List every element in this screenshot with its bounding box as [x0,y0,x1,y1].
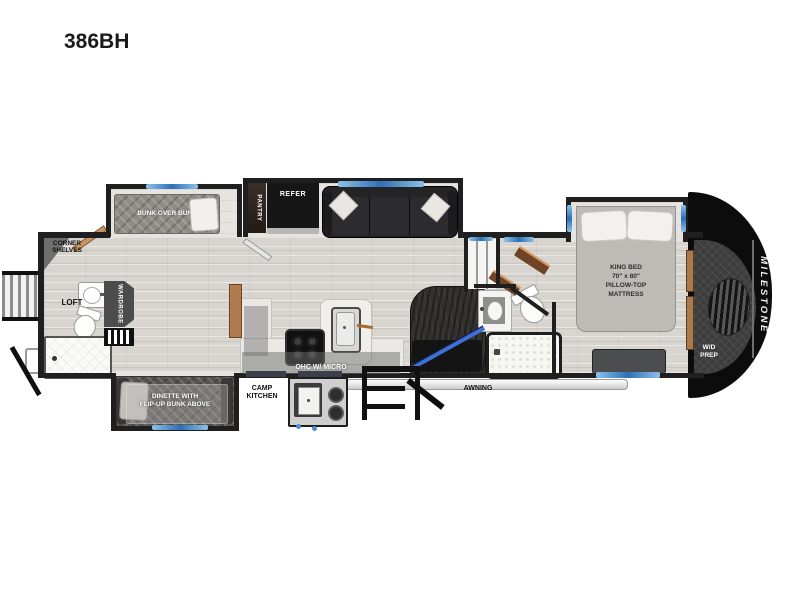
ohc-overlay-left [244,306,268,356]
bunk-slide-wall-right [237,184,242,237]
closet-door-frame-1 [686,250,694,292]
kitchen-wall-pillar [229,284,242,338]
bed-slide-wall-top [566,197,688,202]
bedroom-window [596,372,660,378]
sofa-slide-wall-right [458,178,463,237]
sofa-armrest-right [448,191,457,235]
dresser [592,349,666,374]
dinette-label: DINETTE WITH FLIP-UP BUNK ABOVE [118,393,232,410]
cap-molding-line [752,240,754,358]
dinette-window [152,425,208,430]
stair-wall-right [496,237,500,287]
entry-steps-icon [362,366,420,420]
awning-label: AWNING [448,385,508,393]
bunk-slide-wall-left [106,184,111,237]
island-sink-basin [336,312,355,346]
floorplan-diagram: 386BH CORNER SHELVES LOFT [0,0,800,600]
midbath-tub [486,332,562,379]
bed-pillow-left [580,210,628,242]
rear-ladder-icon [2,271,40,321]
hall-window [504,237,534,242]
entry-step-rung-1 [367,386,405,391]
sofa-slide-wall-left [243,178,248,237]
bed-slide-window-right [681,205,686,232]
midbath-sink-bowl [487,301,503,321]
midbath-sink-faucet [480,307,484,311]
shower-head-icon [52,356,57,361]
camp-kitchen-label: CAMP KITCHEN [238,385,286,401]
bunk-pillow [189,197,219,232]
sink-faucet [100,293,104,296]
bunk-window [146,184,198,189]
wardrobe: WARDROBE [104,281,134,327]
kitchen-window-1 [246,371,286,377]
stair-wall-left [464,237,468,292]
bottom-wall-left [38,373,113,378]
wd-prep-label: W/D PREP [692,344,726,361]
dinette-slide-wall-right [234,373,239,431]
sofa [322,186,458,238]
top-wall-left [38,232,110,238]
milestone-logo: MILESTONE [757,232,769,358]
bedroom-stair-treads [468,239,496,289]
closet-door-frame-2 [686,296,694,350]
loft-label: LOFT [54,298,90,307]
bed-slide-window-left [567,205,572,232]
camp-kitchen-burner-1 [328,387,344,403]
loft-ladder-icon [104,328,134,346]
camp-kitchen-unit [288,377,348,427]
king-bed-label: KING BED 70" x 80" PILLOW-TOP MATTRESS [587,263,665,299]
camp-kitchen-drain [307,399,310,402]
sofa-armrest-left [323,191,332,235]
camp-kitchen-dot-1 [296,424,301,429]
king-bed: KING BED 70" x 80" PILLOW-TOP MATTRESS [576,206,676,332]
bed-pillow-right [626,210,674,242]
sofa-window [338,181,424,187]
bunk-label: BUNK OVER BUNK [137,210,197,218]
bath-bedroom-wall [552,302,556,373]
refer-label: REFER [280,190,306,199]
refrigerator: REFER [267,183,319,230]
pantry-label: PANTRY [253,194,261,221]
pantry-cabinet: PANTRY [248,183,266,233]
camp-kitchen-burner-2 [328,405,344,421]
stair-window [469,237,493,241]
refer-base [267,228,319,234]
corner-shelves-label: CORNER SHELVES [40,240,94,255]
wardrobe-label: WARDROBE [115,284,123,324]
top-wall-right [683,232,703,238]
tub-faucet [494,349,500,355]
page-title: 386BH [64,30,129,54]
entry-step-rung-2 [367,404,405,409]
island-drain [343,326,346,329]
camp-kitchen-dot-2 [312,426,317,431]
dinette-slide-wall-left [111,373,116,431]
